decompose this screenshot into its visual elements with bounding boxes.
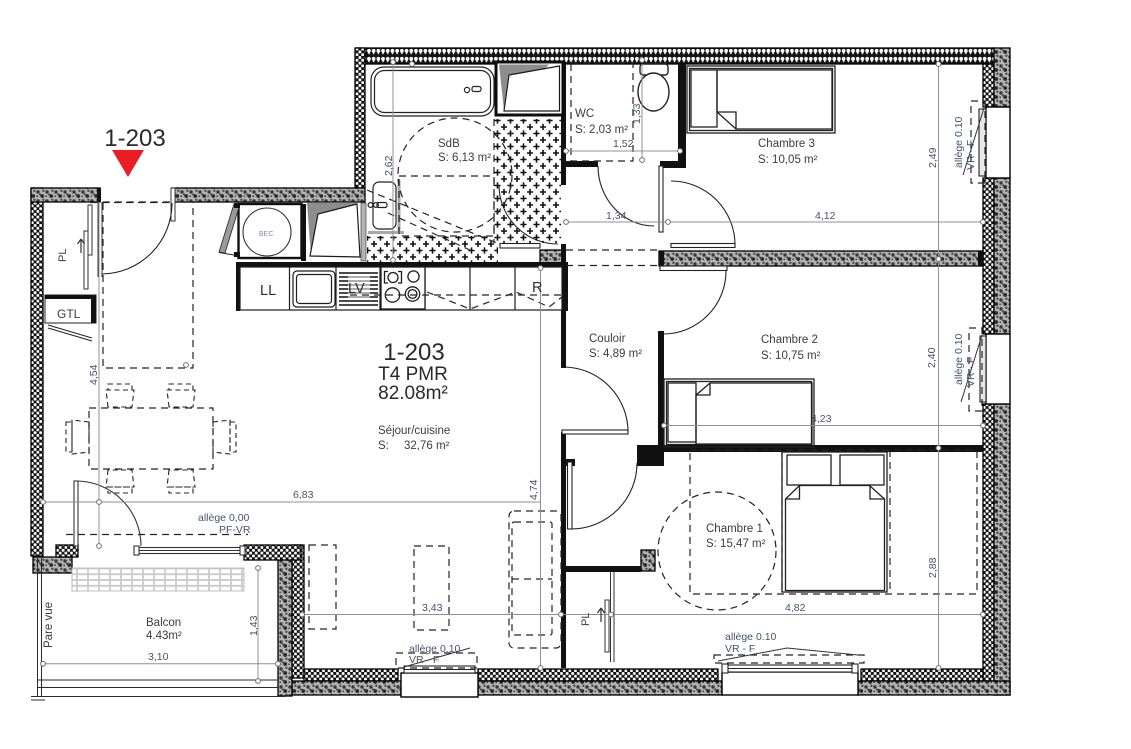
svg-text:S: 2,03 m²: S: 2,03 m² xyxy=(575,124,628,136)
svg-text:1,52: 1,52 xyxy=(613,138,634,150)
svg-text:1-203: 1-203 xyxy=(104,125,165,152)
svg-text:3,43: 3,43 xyxy=(422,602,443,614)
svg-text:S: 10,75 m²: S: 10,75 m² xyxy=(761,350,821,362)
svg-text:82.08m²: 82.08m² xyxy=(378,383,448,404)
svg-text:allège 0.10: allège 0.10 xyxy=(725,631,777,643)
svg-text:Chambre 2: Chambre 2 xyxy=(761,334,818,346)
svg-text:4,74: 4,74 xyxy=(528,479,540,500)
svg-text:Chambre 1: Chambre 1 xyxy=(706,523,763,535)
svg-text:VR - F: VR - F xyxy=(965,357,977,387)
svg-text:2,40: 2,40 xyxy=(926,347,938,368)
svg-text:allège 0.10: allège 0.10 xyxy=(953,333,965,385)
svg-text:LV: LV xyxy=(348,281,365,297)
svg-text:Balcon: Balcon xyxy=(146,617,181,629)
svg-text:S:: S: xyxy=(378,440,389,452)
svg-text:4,12: 4,12 xyxy=(815,210,836,222)
svg-text:PL: PL xyxy=(580,613,592,626)
svg-text:4,82: 4,82 xyxy=(785,602,806,614)
svg-text:4,54: 4,54 xyxy=(88,364,100,385)
svg-text:PL: PL xyxy=(57,249,69,262)
svg-text:VR - F: VR - F xyxy=(965,140,977,170)
svg-text:allège 0.10: allège 0.10 xyxy=(953,116,965,168)
svg-text:BEC: BEC xyxy=(259,231,273,238)
svg-text:VR - F: VR - F xyxy=(725,643,755,655)
svg-text:allège 0,00: allège 0,00 xyxy=(198,512,250,524)
svg-text:32,76 m²: 32,76 m² xyxy=(404,440,450,452)
svg-text:1,43: 1,43 xyxy=(248,615,260,636)
svg-text:VR - F: VR - F xyxy=(409,654,439,666)
svg-text:4,23: 4,23 xyxy=(811,413,832,425)
svg-text:2,62: 2,62 xyxy=(383,155,395,176)
svg-text:S: 10,05 m²: S: 10,05 m² xyxy=(758,154,818,166)
svg-text:1,34: 1,34 xyxy=(606,210,627,222)
svg-text:2,49: 2,49 xyxy=(927,147,939,168)
svg-text:SdB: SdB xyxy=(438,138,460,150)
svg-text:Chambre 3: Chambre 3 xyxy=(758,138,815,150)
svg-text:6,83: 6,83 xyxy=(293,489,314,501)
svg-text:WC: WC xyxy=(575,108,594,120)
svg-text:3,10: 3,10 xyxy=(148,651,169,663)
svg-text:S: 4,89 m²: S: 4,89 m² xyxy=(589,348,642,360)
svg-text:Séjour/cuisine: Séjour/cuisine xyxy=(378,425,450,437)
svg-text:1,33: 1,33 xyxy=(631,103,643,124)
svg-text:Couloir: Couloir xyxy=(589,333,626,345)
svg-text:4.43m²: 4.43m² xyxy=(146,630,182,642)
svg-text:Pare vue: Pare vue xyxy=(43,602,55,648)
svg-text:T4 PMR: T4 PMR xyxy=(378,364,448,385)
svg-text:GTL: GTL xyxy=(57,307,81,321)
svg-text:S: 15,47 m²: S: 15,47 m² xyxy=(706,538,766,550)
svg-text:LL: LL xyxy=(260,283,276,299)
svg-text:2,88: 2,88 xyxy=(927,557,939,578)
svg-text:1-203: 1-203 xyxy=(383,339,444,366)
svg-text:R: R xyxy=(532,280,542,296)
svg-text:PF-VR: PF-VR xyxy=(219,524,251,536)
svg-text:S: 6,13 m²: S: 6,13 m² xyxy=(438,152,491,164)
